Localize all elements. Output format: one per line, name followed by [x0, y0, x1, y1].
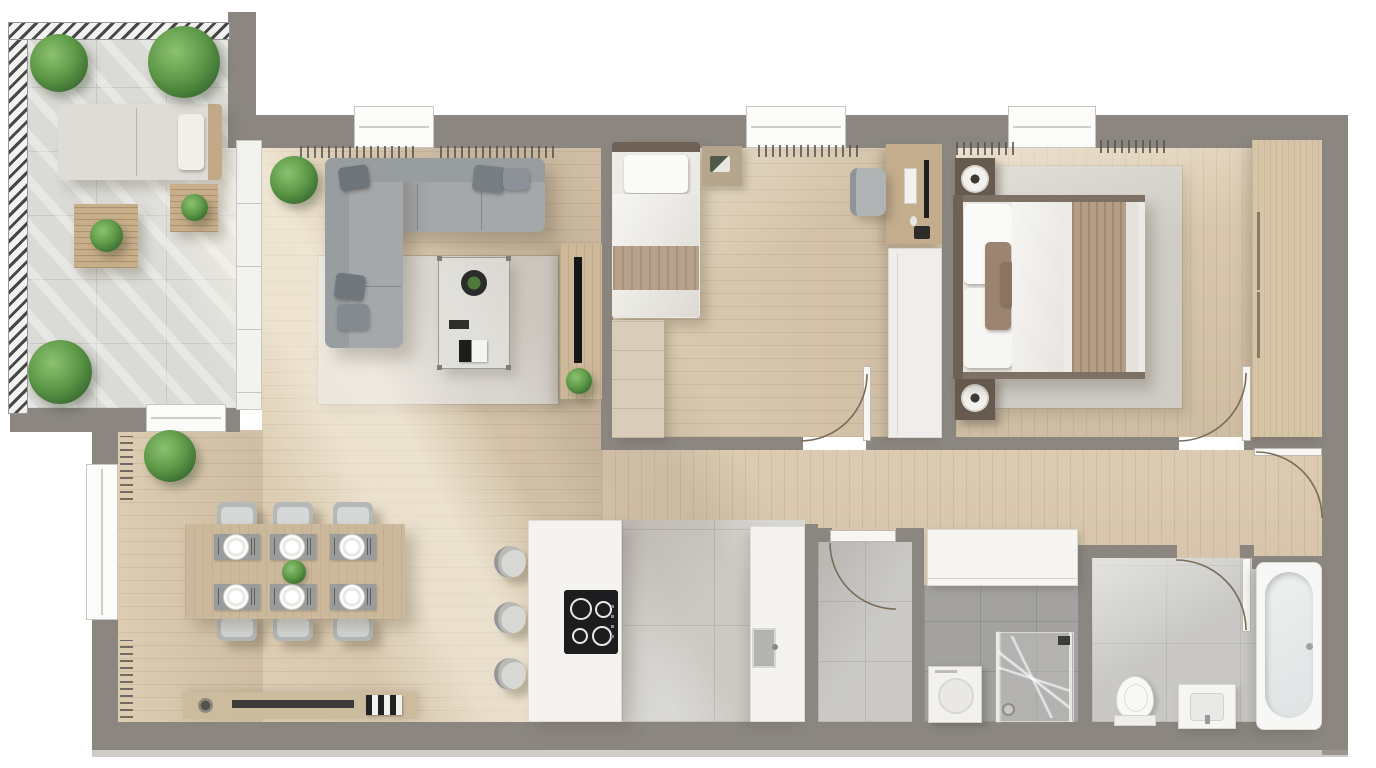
wardrobe-door-line [897, 253, 898, 435]
storage-room-floor [818, 542, 912, 722]
wall-bottom [92, 722, 1348, 750]
bed-rail-top [963, 195, 1145, 202]
placemat [214, 534, 260, 560]
floor-plan [0, 0, 1376, 768]
desk-lamp [914, 226, 930, 239]
living-room-plant [270, 156, 318, 204]
bed-sheet-fold [1012, 202, 1064, 372]
decor-bowl-small [198, 698, 213, 713]
table-leg [506, 256, 511, 261]
sofa-pillow-3 [503, 168, 529, 190]
radiator-master-1 [956, 142, 1018, 155]
sofa-pillow-1 [337, 164, 370, 192]
wall-shower-bathroom [1078, 545, 1092, 722]
wall-bathroom-top [1085, 545, 1177, 558]
master-wardrobe [1252, 140, 1322, 437]
wall-terrace-stub [228, 12, 256, 118]
table-centerpiece-plant [282, 560, 306, 584]
outdoor-sofa-wood-edge [208, 104, 222, 180]
master-nightstand-top [955, 158, 995, 200]
outdoor-sofa-cushion-split [136, 108, 137, 176]
cooktop-controls [611, 604, 614, 638]
bar-stool [494, 658, 526, 690]
corner-sofa [325, 158, 545, 348]
potted-plant-table-large [90, 219, 123, 252]
radiator-dining-2 [120, 640, 133, 718]
burner [570, 598, 592, 620]
toilet-seat-line [1124, 684, 1148, 712]
bathroom-door [1242, 558, 1251, 632]
terrace-plant-top-left [30, 34, 88, 92]
desk-chair [850, 168, 886, 216]
bedroom1-door [863, 366, 871, 441]
wall-storage-right [912, 528, 924, 722]
bed-foot-sheet [613, 290, 699, 317]
burner [595, 601, 612, 618]
bed-rail-bottom [963, 372, 1145, 379]
bed-blanket [1072, 202, 1126, 372]
bed-duvet [613, 194, 699, 254]
bar-stool [494, 546, 526, 578]
radiator-living-1 [300, 146, 416, 158]
wall-kitchen-storage [805, 524, 818, 722]
desk-mouse [910, 216, 917, 226]
window-living [354, 106, 434, 148]
washing-machine [928, 666, 982, 723]
table-leg [437, 256, 442, 261]
remote-control [449, 320, 469, 329]
tv-screen [574, 257, 582, 363]
placemat [270, 584, 316, 610]
wall-bedroom1-bottom-right [866, 437, 945, 450]
hall-cabinet [927, 529, 1078, 586]
walk-in-shower [996, 632, 1074, 722]
bedroom1-dresser [612, 320, 664, 438]
bed-headboard [953, 195, 963, 379]
bar-stool [494, 602, 526, 634]
decor-bowl [461, 270, 487, 296]
kitchen-counter [750, 526, 805, 722]
wardrobe-handle [1257, 292, 1260, 358]
burner [592, 626, 612, 646]
faucet [772, 644, 778, 650]
radiator-bedroom1 [758, 145, 860, 157]
terrace-glass-wall [236, 140, 262, 410]
window-bedroom1 [746, 106, 846, 148]
washer-panel [935, 670, 957, 673]
nightstand-decor [710, 156, 730, 172]
dining-corner-plant [144, 430, 196, 482]
books-stack [366, 695, 402, 715]
window-dining-left [86, 464, 118, 620]
terrace-door [146, 404, 226, 432]
outdoor-sofa [58, 104, 222, 180]
table-leg [506, 365, 511, 370]
bed-blanket [613, 246, 699, 290]
tv-console-plant [566, 368, 592, 394]
placemat [214, 584, 260, 610]
kitchen-sink [752, 628, 776, 668]
wall-right [1322, 115, 1348, 755]
hall-door [1254, 448, 1322, 456]
vanity-unit [1178, 684, 1236, 729]
bedroom1-nightstand [702, 146, 742, 186]
double-bed [953, 195, 1145, 379]
radiator-dining-1 [120, 436, 133, 500]
table-lamp [961, 384, 989, 412]
sofa-pillow-5 [337, 304, 369, 330]
placemat [330, 584, 376, 610]
bathtub [1256, 562, 1322, 730]
bathtub-faucet [1306, 643, 1313, 650]
placemat [330, 534, 376, 560]
dining-table [185, 524, 405, 619]
storage-door [830, 530, 896, 542]
single-bed [612, 142, 700, 318]
table-lamp [961, 165, 989, 193]
wall-master-bottom-left [945, 437, 1179, 450]
desk [886, 144, 942, 244]
terrace-plant-top-center [148, 26, 220, 98]
terrace-railing-left [8, 22, 28, 414]
window-master [1008, 106, 1096, 148]
master-door [1242, 366, 1251, 441]
shower-drain [1002, 703, 1015, 716]
vanity-faucet [1205, 715, 1210, 724]
master-nightstand-bottom [955, 376, 995, 420]
bed-pillow [624, 155, 688, 193]
toilet [1114, 676, 1156, 726]
potted-plant-table-small [181, 194, 208, 221]
magazine [459, 340, 487, 362]
wardrobe-handle [1257, 212, 1260, 290]
table-runner [232, 700, 354, 708]
sofa-pillow-4 [334, 272, 367, 301]
shower-handle [1058, 636, 1070, 645]
glass-coffee-table [438, 257, 510, 369]
outdoor-sofa-pillow [178, 114, 204, 170]
bed-headboard [612, 142, 700, 152]
cooktop [564, 590, 618, 654]
bed-foot-edge [1126, 202, 1138, 372]
sideboard [183, 692, 417, 719]
burner [572, 628, 588, 644]
bedroom1-wardrobe [888, 248, 942, 438]
table-leg [437, 365, 442, 370]
toilet-tank [1114, 715, 1156, 726]
radiator-master-2 [1100, 140, 1166, 153]
sofa-seat-split-1 [417, 184, 418, 230]
radiator-living-2 [440, 146, 558, 158]
washer-drum [938, 678, 974, 714]
hall-cabinet-edge [928, 578, 1077, 579]
placemat [270, 534, 316, 560]
terrace-plant-bottom-left [28, 340, 92, 404]
sofa-pillow-2 [472, 164, 507, 193]
desk-monitor [924, 160, 929, 218]
wall-bedroom1-bottom-left [601, 437, 803, 450]
desk-keyboard [904, 168, 917, 204]
wall-bottom-outer-edge [92, 750, 1348, 757]
